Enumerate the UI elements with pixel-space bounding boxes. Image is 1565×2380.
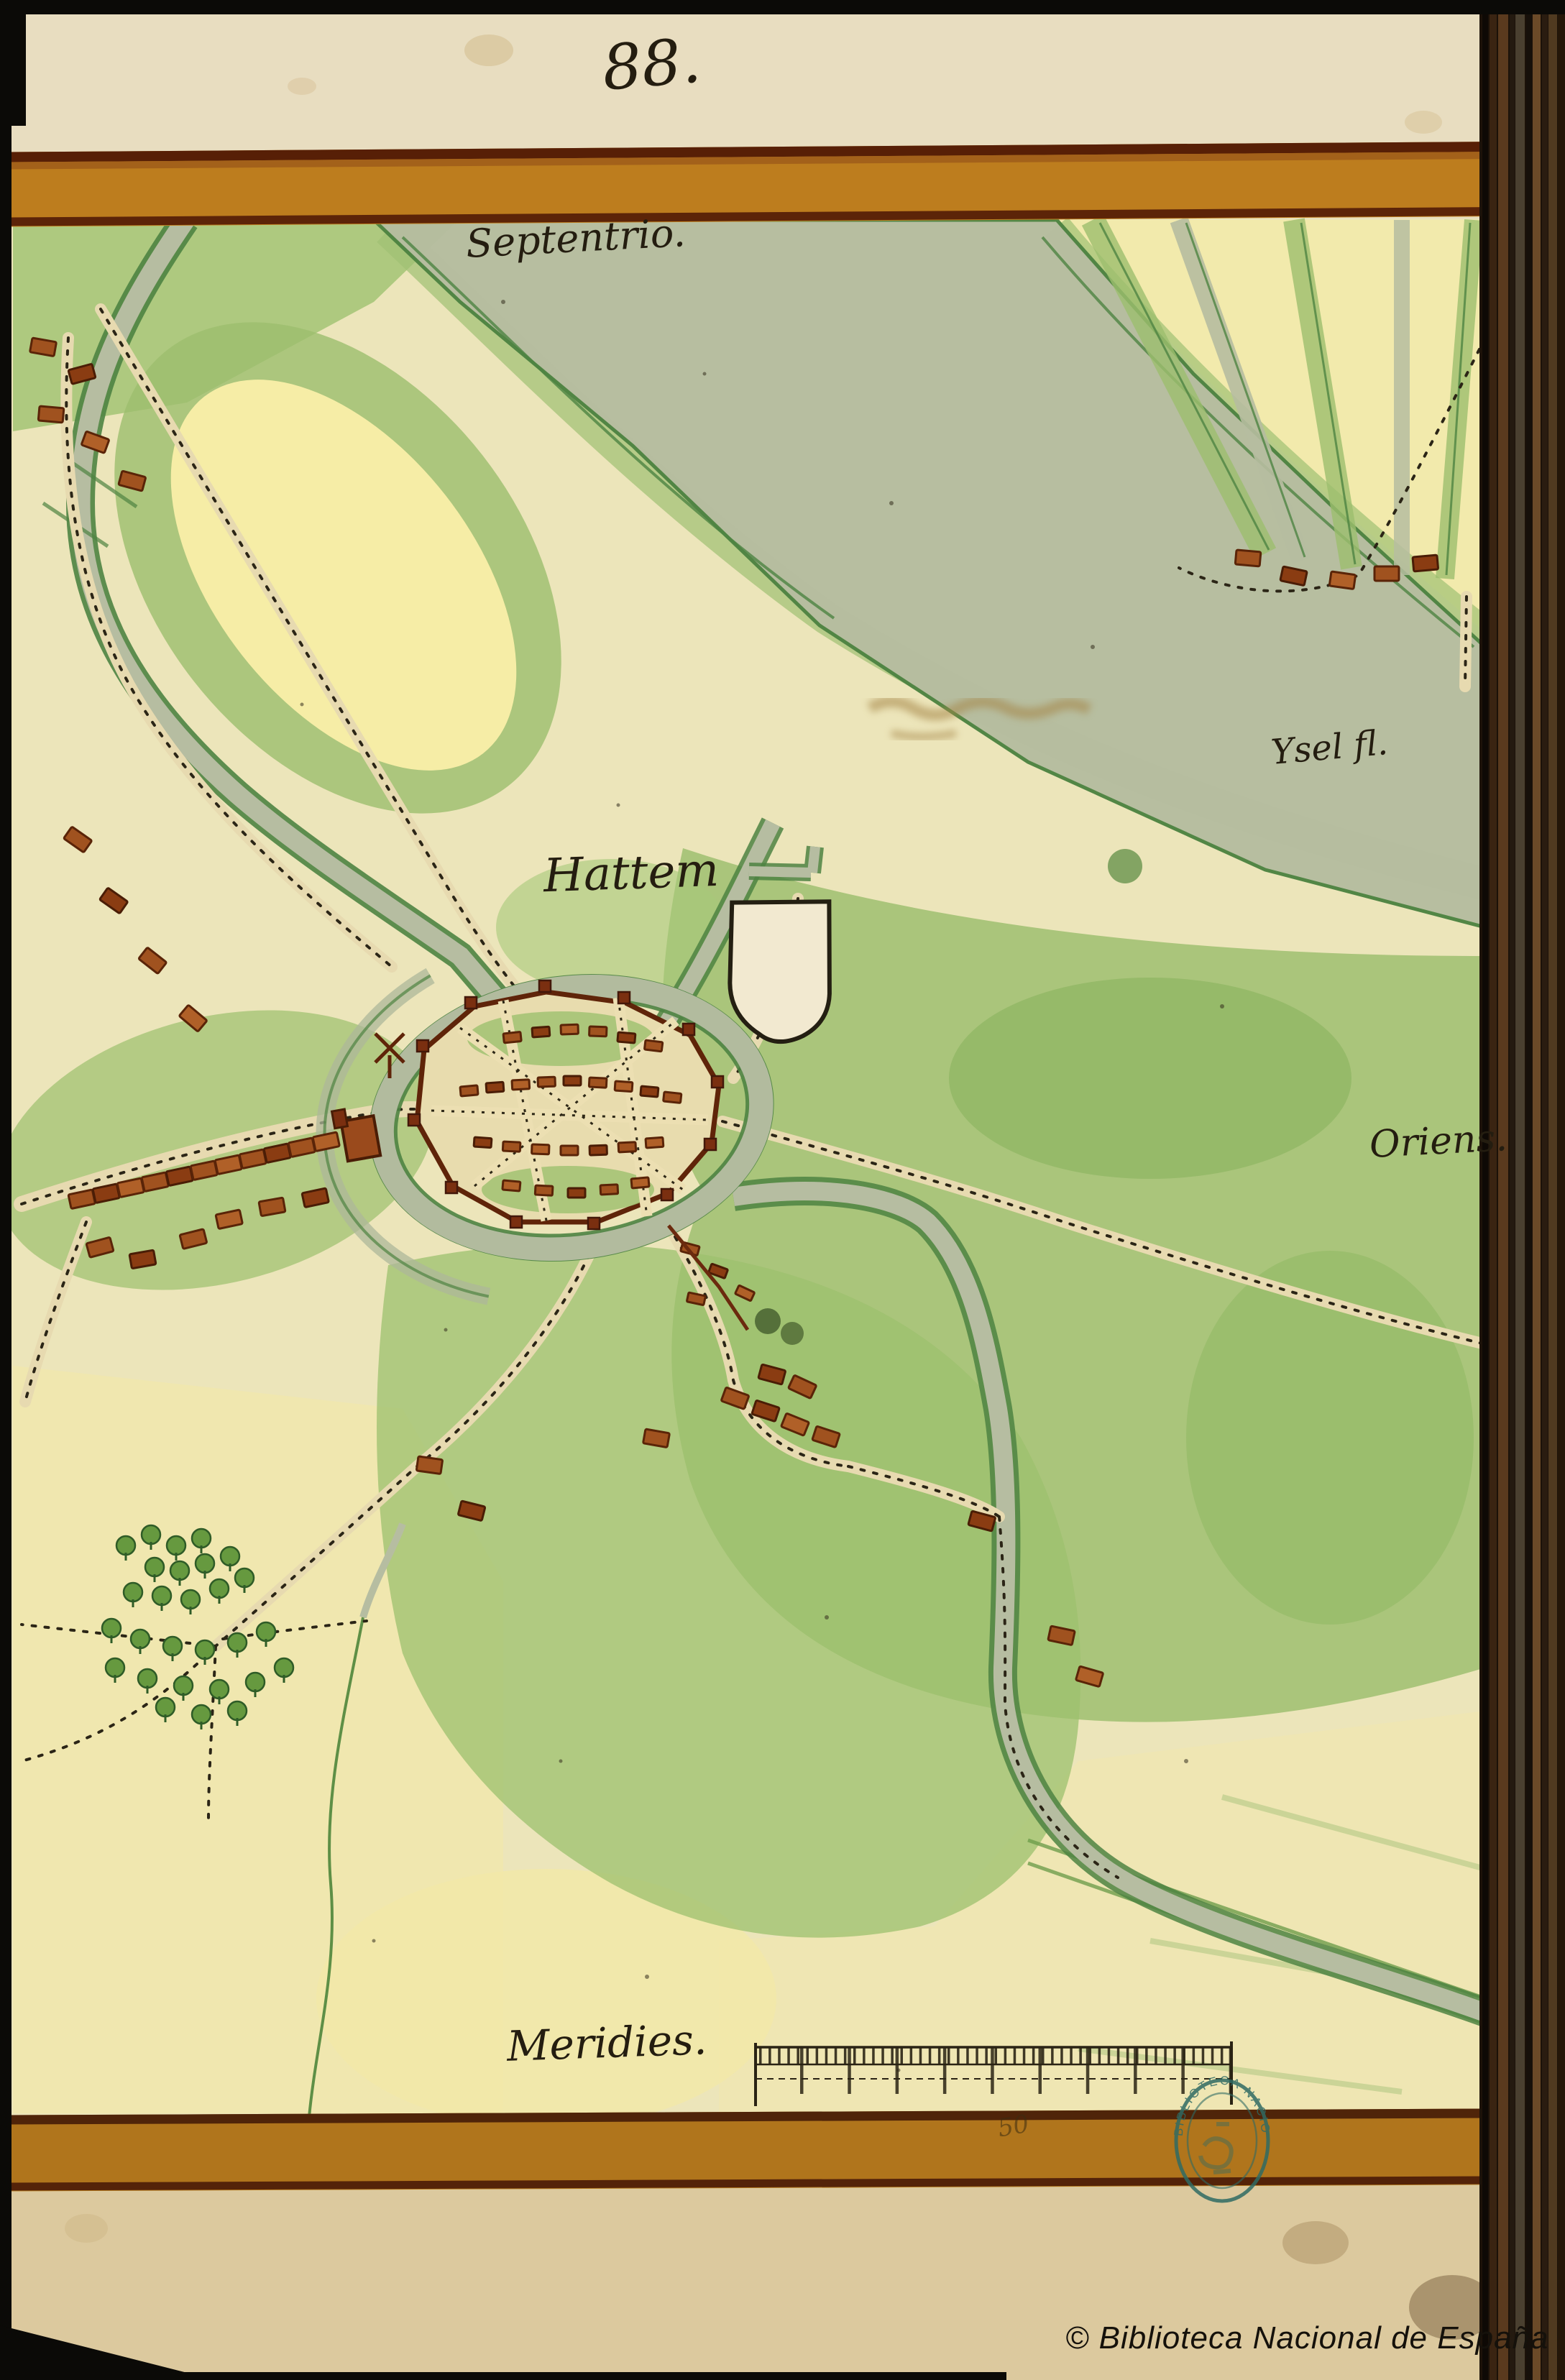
manuscript-map-page: BIBLIOTECA NACIONAL 88. Septentrio. Hatt… bbox=[0, 0, 1565, 2380]
label-town-hattem: Hattem bbox=[543, 844, 720, 903]
label-east: Oriens. bbox=[1369, 1116, 1508, 1167]
map-artwork: BIBLIOTECA NACIONAL bbox=[0, 0, 1565, 2380]
folio-number: 88. bbox=[600, 24, 704, 105]
label-south: Meridies. bbox=[506, 2015, 707, 2071]
band-inscription: 50 bbox=[996, 2110, 1032, 2144]
book-edge bbox=[1479, 0, 1565, 2380]
heraldic-shield bbox=[728, 899, 833, 1044]
frame-band-top bbox=[7, 142, 1489, 226]
copyright-watermark: © Biblioteca Nacional de España bbox=[1065, 2320, 1548, 2356]
